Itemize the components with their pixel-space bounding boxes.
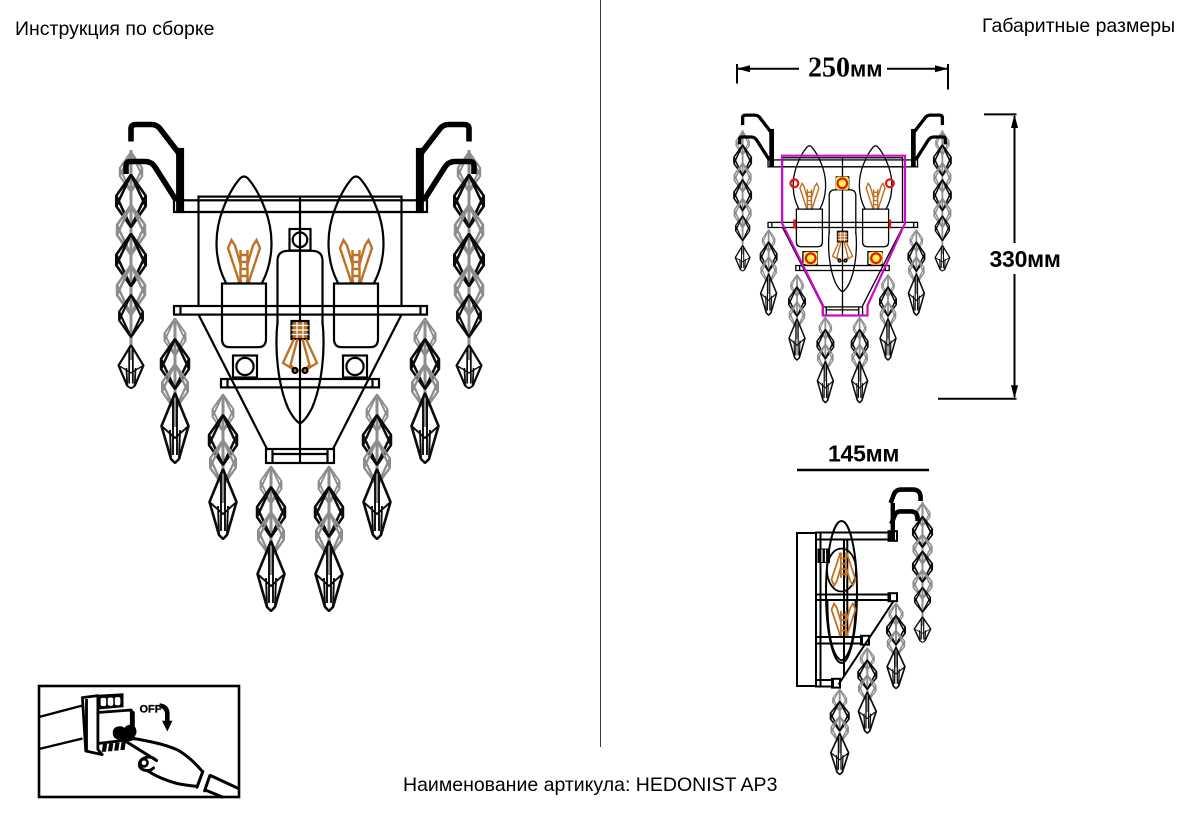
svg-text:145мм: 145мм [828,441,899,467]
svg-text:OFF: OFF [140,704,162,716]
svg-text:250мм: 250мм [808,53,883,84]
svg-text:330мм: 330мм [990,246,1061,272]
